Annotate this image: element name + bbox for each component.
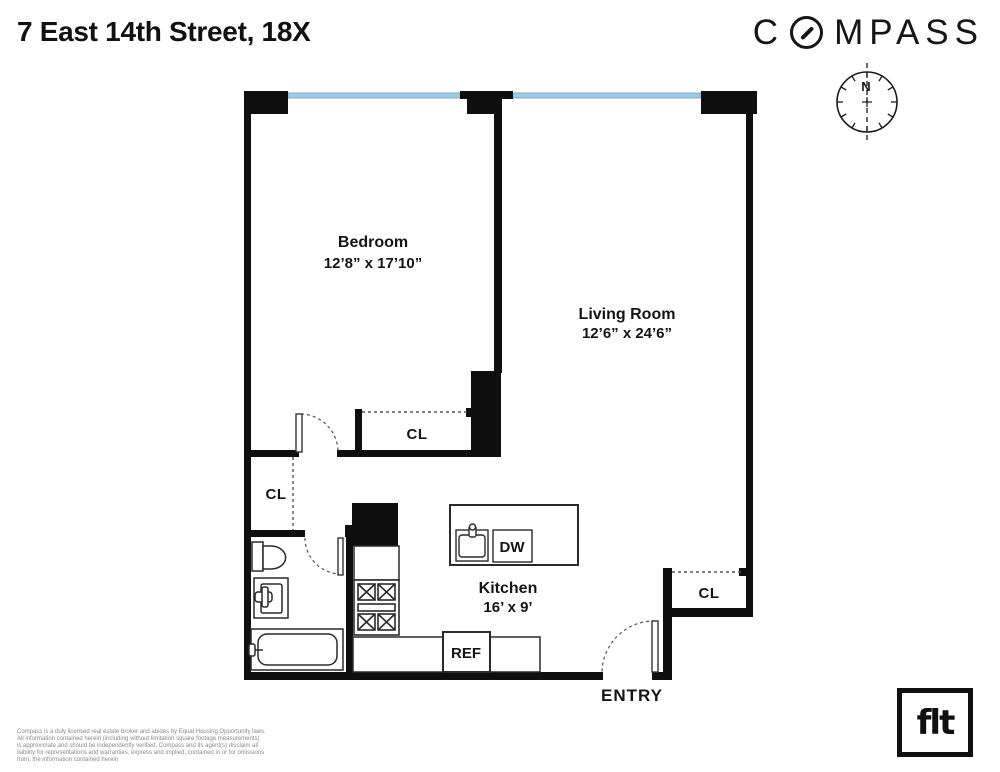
- kitchen-island: [450, 505, 578, 565]
- disclaimer-line: Compass is a duly licensed real estate b…: [17, 729, 266, 736]
- stove: [354, 580, 399, 635]
- kitchen-dimensions: 16’ x 9’: [483, 599, 532, 616]
- disclaimer-line: is approximate and should be independent…: [17, 743, 266, 750]
- page-title: 7 East 14th Street, 18X: [17, 16, 310, 48]
- floorplan-page: N 7 East 14th Street, 18X C MPASS Bedroo…: [0, 0, 1000, 772]
- wall-segment: [494, 99, 502, 373]
- flt-logo: flt: [897, 688, 973, 757]
- legal-disclaimer: Compass is a duly licensed real estate b…: [17, 729, 266, 764]
- kitchen-counter-upper: [354, 546, 399, 580]
- bedroom-window: [288, 93, 460, 98]
- kitchen-label: Kitchen: [479, 580, 538, 598]
- refrigerator-label: REF: [451, 645, 481, 662]
- north-label: N: [861, 79, 870, 94]
- bedroom-label: Bedroom: [338, 234, 408, 252]
- disclaimer-line: liability for representations and warran…: [17, 750, 266, 757]
- disclaimer-line: All information contained herein (includ…: [17, 736, 266, 743]
- living-room-label: Living Room: [579, 306, 676, 324]
- dishwasher-label: DW: [500, 539, 525, 556]
- wall-segment: [251, 450, 299, 457]
- wall-segment: [663, 608, 753, 617]
- disclaimer-line: from, the information contained herein: [17, 757, 266, 764]
- wall-segment: [352, 503, 398, 546]
- wall-segment: [244, 672, 603, 680]
- wall-segment: [244, 92, 251, 680]
- bathtub: [249, 629, 343, 670]
- wall-segment: [663, 568, 672, 680]
- island-sink: [456, 524, 488, 561]
- living-room-dimensions: 12’6” x 24’6”: [582, 325, 672, 342]
- bedroom-closet-label: CL: [407, 426, 428, 443]
- wall-segment: [471, 371, 501, 457]
- compass-logo: C MPASS: [753, 15, 984, 50]
- wall-segment: [251, 530, 305, 537]
- wall-segment: [467, 99, 495, 114]
- compass-logo-suffix: MPASS: [834, 15, 984, 50]
- compass-rose: N: [837, 63, 897, 141]
- entry-door: [602, 621, 658, 672]
- wall-segment: [460, 91, 513, 99]
- bathroom-door: [305, 538, 343, 575]
- bathroom-fixtures: [249, 542, 343, 670]
- wall-segment: [355, 409, 362, 457]
- wall-segment: [746, 92, 753, 617]
- bathroom-sink: [254, 578, 288, 618]
- entry-label: ENTRY: [601, 686, 663, 706]
- wall-segment: [345, 525, 353, 537]
- bedroom-dimensions: 12’8” x 17’10”: [324, 255, 422, 272]
- compass-needle-icon: [800, 26, 814, 40]
- entry-closet-label: CL: [699, 585, 720, 602]
- flt-logo-text: flt: [917, 703, 954, 743]
- living-room-window: [513, 93, 701, 98]
- wall-segment: [466, 408, 475, 417]
- hall-closet-label: CL: [266, 486, 287, 503]
- wall-segment: [346, 537, 353, 672]
- floorplan-drawing: N: [0, 0, 1000, 772]
- compass-logo-o-icon: [790, 16, 823, 49]
- compass-logo-prefix: C: [753, 15, 784, 50]
- bedroom-door: [296, 414, 338, 452]
- toilet: [252, 542, 286, 571]
